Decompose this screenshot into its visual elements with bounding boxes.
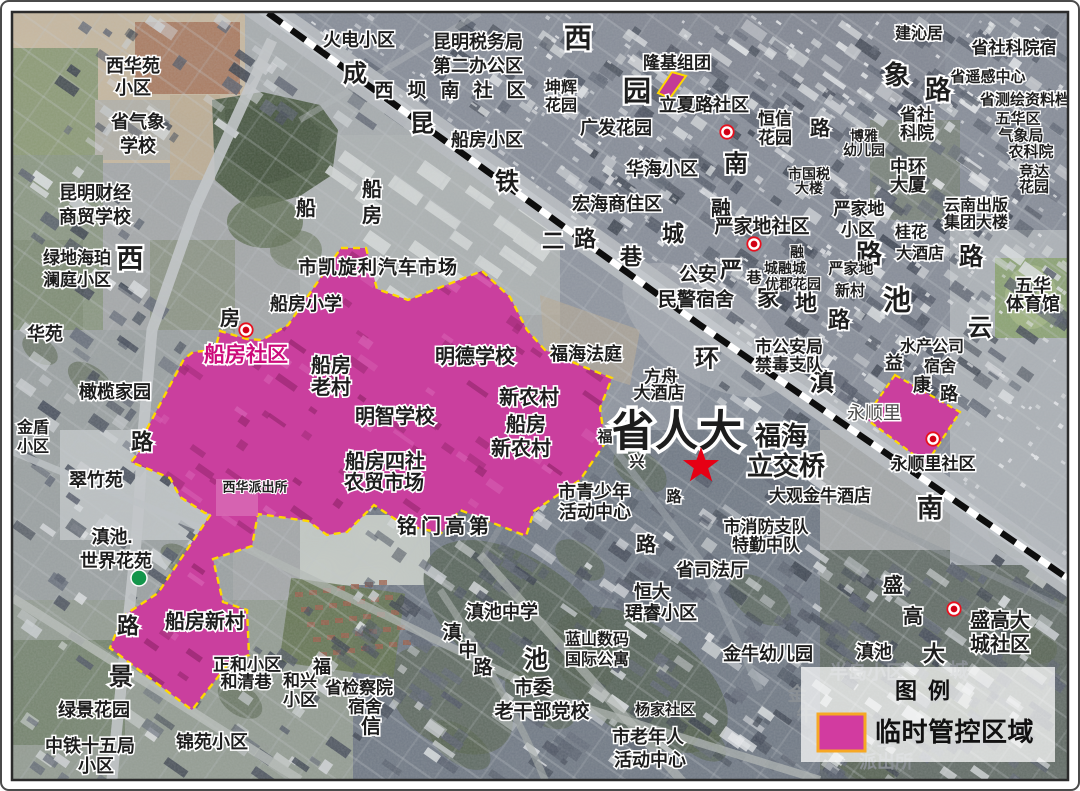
svg-text:省测绘资料档: 省测绘资料档 bbox=[979, 91, 1070, 109]
svg-text:恒大: 恒大 bbox=[634, 581, 670, 602]
svg-text:西: 西 bbox=[117, 244, 144, 274]
svg-text:船房: 船房 bbox=[506, 412, 546, 436]
svg-text:路: 路 bbox=[574, 227, 597, 252]
svg-text:中环: 中环 bbox=[890, 156, 926, 177]
svg-text:省检察院: 省检察院 bbox=[324, 678, 393, 698]
svg-text:优郡花园: 优郡花园 bbox=[765, 276, 821, 292]
svg-text:市公安局: 市公安局 bbox=[755, 337, 823, 357]
svg-text:船: 船 bbox=[362, 177, 382, 201]
svg-text:大: 大 bbox=[923, 642, 945, 667]
svg-text:活动中心: 活动中心 bbox=[614, 749, 686, 770]
svg-text:路: 路 bbox=[925, 75, 952, 105]
svg-text:昆: 昆 bbox=[410, 111, 434, 138]
svg-text:绿景花园: 绿景花园 bbox=[58, 699, 130, 720]
svg-text:地: 地 bbox=[795, 291, 817, 316]
svg-text:隆基组团: 隆基组团 bbox=[643, 53, 711, 73]
svg-text:省司法厅: 省司法厅 bbox=[675, 559, 748, 580]
svg-text:立交桥: 立交桥 bbox=[747, 451, 826, 481]
svg-text:城融城: 城融城 bbox=[764, 260, 806, 276]
svg-text:路: 路 bbox=[959, 243, 984, 271]
svg-text:和清巷: 和清巷 bbox=[221, 672, 273, 692]
svg-text:华苑: 华苑 bbox=[27, 323, 63, 344]
svg-text:农科院: 农科院 bbox=[1007, 143, 1053, 161]
svg-text:市消防支队: 市消防支队 bbox=[724, 517, 810, 537]
svg-text:学校: 学校 bbox=[120, 135, 157, 156]
svg-text:锦苑小区: 锦苑小区 bbox=[176, 731, 248, 752]
svg-text:路: 路 bbox=[828, 308, 851, 333]
svg-text:成: 成 bbox=[343, 61, 367, 88]
svg-text:福: 福 bbox=[596, 428, 612, 446]
svg-text:船房社区: 船房社区 bbox=[204, 343, 288, 367]
svg-text:象: 象 bbox=[884, 60, 910, 90]
svg-text:金盾: 金盾 bbox=[16, 418, 49, 437]
svg-text:永顺里: 永顺里 bbox=[847, 403, 901, 423]
svg-text:船房新村: 船房新村 bbox=[165, 609, 245, 633]
svg-text:科院: 科院 bbox=[900, 123, 934, 143]
svg-text:滇池: 滇池 bbox=[856, 641, 892, 662]
svg-text:省遥感中心: 省遥感中心 bbox=[949, 68, 1025, 86]
svg-text:五华区: 五华区 bbox=[995, 110, 1040, 128]
svg-text:西华派出所: 西华派出所 bbox=[222, 480, 287, 495]
svg-text:和兴: 和兴 bbox=[283, 672, 317, 691]
svg-text:池: 池 bbox=[524, 647, 548, 674]
svg-text:船房小区: 船房小区 bbox=[451, 129, 523, 150]
svg-text:巷: 巷 bbox=[619, 245, 643, 270]
svg-text:绿地海珀: 绿地海珀 bbox=[43, 248, 111, 268]
svg-text:路: 路 bbox=[666, 488, 682, 506]
svg-text:商贸学校: 商贸学校 bbox=[59, 206, 132, 227]
svg-text:活动中心: 活动中心 bbox=[559, 501, 631, 522]
svg-text:西华苑: 西华苑 bbox=[106, 55, 160, 76]
svg-text:环: 环 bbox=[695, 346, 719, 373]
svg-text:图例: 图例 bbox=[895, 679, 961, 704]
svg-text:珺睿小区: 珺睿小区 bbox=[625, 602, 697, 623]
svg-text:市老年人: 市老年人 bbox=[612, 726, 685, 747]
svg-text:桂花: 桂花 bbox=[894, 223, 927, 242]
svg-text:老村: 老村 bbox=[311, 375, 351, 399]
svg-text:第二办公区: 第二办公区 bbox=[433, 55, 523, 76]
svg-text:广发花园: 广发花园 bbox=[580, 117, 652, 138]
svg-text:严: 严 bbox=[720, 258, 742, 283]
svg-text:建沁居: 建沁居 bbox=[895, 24, 943, 43]
svg-text:铁: 铁 bbox=[495, 169, 519, 196]
svg-text:盛: 盛 bbox=[883, 573, 903, 597]
svg-text:华海小区: 华海小区 bbox=[626, 158, 698, 179]
svg-text:明德学校: 明德学校 bbox=[435, 344, 516, 368]
svg-text:水产公司: 水产公司 bbox=[900, 337, 964, 356]
svg-text:金牛幼儿园: 金牛幼儿园 bbox=[722, 643, 813, 664]
svg-text:严家地社区: 严家地社区 bbox=[714, 215, 809, 238]
svg-text:滇池.: 滇池. bbox=[91, 526, 132, 547]
svg-text:路: 路 bbox=[473, 656, 493, 679]
svg-text:路: 路 bbox=[636, 532, 657, 556]
svg-text:严家地: 严家地 bbox=[827, 260, 873, 278]
svg-text:民警宿舍: 民警宿舍 bbox=[658, 288, 735, 311]
svg-text:公安: 公安 bbox=[679, 263, 717, 286]
svg-text:集团大楼: 集团大楼 bbox=[943, 213, 1008, 232]
svg-text:幼儿园: 幼儿园 bbox=[843, 142, 885, 158]
svg-text:花园: 花园 bbox=[1019, 178, 1049, 196]
svg-text:宿舍: 宿舍 bbox=[924, 357, 957, 376]
svg-text:船房: 船房 bbox=[311, 353, 351, 377]
svg-text:世界花苑: 世界花苑 bbox=[80, 550, 152, 571]
svg-text:新农村: 新农村 bbox=[499, 385, 559, 409]
svg-text:新农村: 新农村 bbox=[491, 436, 551, 460]
svg-text:坤辉: 坤辉 bbox=[545, 78, 577, 97]
svg-text:西: 西 bbox=[564, 23, 592, 54]
svg-text:国际公寓: 国际公寓 bbox=[565, 650, 629, 669]
svg-text:省人大: 省人大 bbox=[611, 408, 743, 456]
svg-text:体育馆: 体育馆 bbox=[1006, 293, 1060, 314]
svg-text:大楼: 大楼 bbox=[795, 180, 823, 196]
svg-text:南: 南 bbox=[917, 493, 943, 523]
svg-text:省气象: 省气象 bbox=[110, 111, 165, 132]
svg-text:小区: 小区 bbox=[115, 78, 151, 98]
svg-text:严家地: 严家地 bbox=[834, 199, 885, 219]
svg-text:老干部党校: 老干部党校 bbox=[494, 700, 590, 723]
svg-text:翠竹苑: 翠竹苑 bbox=[69, 469, 123, 490]
svg-text:园: 园 bbox=[623, 76, 651, 107]
svg-text:房: 房 bbox=[220, 306, 240, 330]
svg-text:兴: 兴 bbox=[629, 454, 644, 471]
svg-text:房: 房 bbox=[362, 203, 382, 227]
svg-text:新村: 新村 bbox=[835, 282, 865, 300]
svg-text:中铁十五局: 中铁十五局 bbox=[45, 735, 135, 756]
svg-text:信: 信 bbox=[361, 714, 381, 738]
svg-text:福: 福 bbox=[312, 656, 331, 677]
svg-text:农贸市场: 农贸市场 bbox=[343, 470, 424, 494]
svg-text:铭门高第: 铭门高第 bbox=[397, 514, 493, 538]
svg-text:小区: 小区 bbox=[78, 756, 114, 776]
svg-text:立夏路社区: 立夏路社区 bbox=[659, 94, 749, 115]
svg-text:城社区: 城社区 bbox=[970, 632, 1030, 656]
svg-text:市委: 市委 bbox=[514, 676, 552, 699]
svg-text:大酒店: 大酒店 bbox=[896, 244, 944, 263]
svg-text:大观金牛酒店: 大观金牛酒店 bbox=[769, 486, 871, 506]
svg-text:杨家社区: 杨家社区 bbox=[635, 701, 695, 719]
svg-text:路: 路 bbox=[810, 116, 831, 140]
svg-text:云南出版: 云南出版 bbox=[944, 196, 1008, 215]
svg-text:花园: 花园 bbox=[758, 128, 792, 148]
svg-text:船: 船 bbox=[296, 196, 316, 220]
svg-text:市青少年: 市青少年 bbox=[558, 481, 630, 502]
svg-text:船房小学: 船房小学 bbox=[270, 293, 342, 314]
svg-text:小区: 小区 bbox=[283, 691, 317, 710]
svg-text:船房四社: 船房四社 bbox=[345, 449, 425, 473]
svg-text:花园: 花园 bbox=[545, 96, 577, 115]
svg-text:临时管控区域: 临时管控区域 bbox=[875, 717, 1034, 747]
svg-text:西坝南社区: 西坝南社区 bbox=[374, 79, 539, 102]
svg-text:路: 路 bbox=[131, 430, 154, 455]
svg-text:二: 二 bbox=[542, 229, 564, 254]
svg-text:禁毒支队: 禁毒支队 bbox=[755, 355, 824, 375]
svg-text:城: 城 bbox=[662, 222, 684, 247]
svg-text:昆明财经: 昆明财经 bbox=[59, 182, 131, 203]
svg-text:融: 融 bbox=[790, 244, 804, 260]
svg-text:池: 池 bbox=[883, 285, 911, 316]
svg-text:小区: 小区 bbox=[841, 221, 875, 240]
svg-text:省社: 省社 bbox=[899, 105, 934, 125]
svg-text:益: 益 bbox=[885, 352, 903, 373]
svg-text:景: 景 bbox=[109, 664, 133, 691]
svg-text:巷: 巷 bbox=[745, 269, 762, 287]
svg-text:五华: 五华 bbox=[1015, 275, 1051, 296]
svg-text:康: 康 bbox=[913, 374, 932, 395]
svg-text:澜庭小区: 澜庭小区 bbox=[43, 270, 111, 290]
svg-text:宿舍: 宿舍 bbox=[348, 697, 382, 717]
svg-text:明智学校: 明智学校 bbox=[355, 404, 436, 428]
svg-text:永顺里社区: 永顺里社区 bbox=[890, 454, 976, 474]
svg-text:恒信: 恒信 bbox=[758, 109, 792, 129]
svg-text:橄榄家园: 橄榄家园 bbox=[79, 381, 151, 402]
svg-text:大酒店: 大酒店 bbox=[634, 383, 685, 403]
svg-text:市凯旋利汽车市场: 市凯旋利汽车市场 bbox=[298, 256, 458, 279]
svg-text:特勤中队: 特勤中队 bbox=[732, 535, 801, 555]
svg-text:火电小区: 火电小区 bbox=[323, 29, 395, 50]
svg-text:南: 南 bbox=[724, 151, 748, 178]
svg-text:路: 路 bbox=[940, 383, 959, 404]
svg-text:省社科院宿: 省社科院宿 bbox=[971, 38, 1057, 58]
svg-text:云: 云 bbox=[968, 315, 992, 342]
svg-text:气象局: 气象局 bbox=[997, 127, 1043, 145]
svg-text:高: 高 bbox=[903, 604, 923, 628]
svg-text:盛高大: 盛高大 bbox=[970, 608, 1030, 632]
svg-text:福海: 福海 bbox=[754, 421, 807, 451]
svg-text:蓝山数码: 蓝山数码 bbox=[565, 630, 629, 649]
svg-text:昆明税务局: 昆明税务局 bbox=[433, 31, 523, 52]
svg-text:福海法庭: 福海法庭 bbox=[549, 343, 622, 364]
svg-text:路: 路 bbox=[117, 614, 140, 639]
svg-text:滇池中学: 滇池中学 bbox=[466, 601, 538, 622]
svg-text:小区: 小区 bbox=[17, 438, 49, 456]
svg-text:宏海商住区: 宏海商住区 bbox=[572, 193, 662, 214]
svg-text:大厦: 大厦 bbox=[890, 174, 927, 195]
